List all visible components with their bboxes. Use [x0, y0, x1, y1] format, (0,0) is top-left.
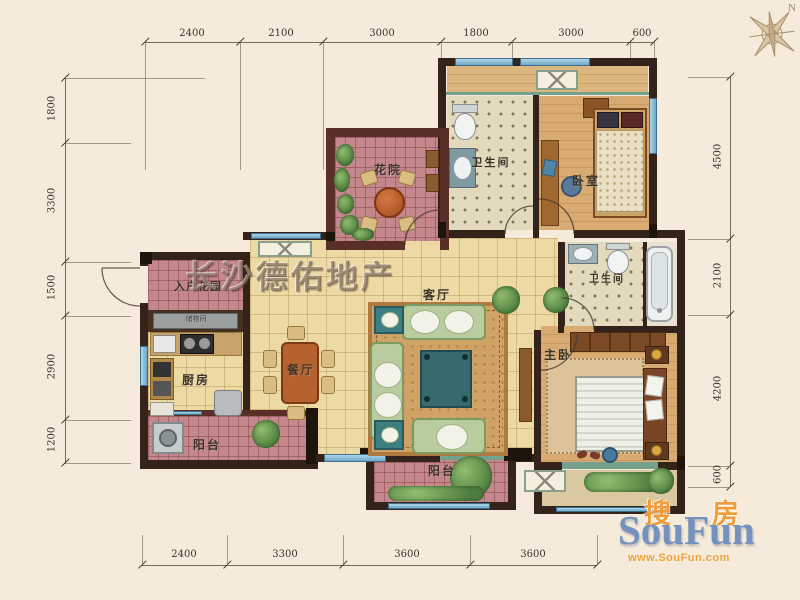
entry-door-arc: [102, 268, 140, 306]
tv-cabinet: [519, 348, 532, 422]
dim-top-4: 1800: [458, 28, 494, 39]
dim-top-1: 2400: [174, 28, 210, 39]
window-kitchen-left: [140, 346, 148, 386]
dim-bottom-3: 3600: [389, 549, 425, 560]
soufun-logo: 搜 房 SouFun www.SouFun.com: [618, 490, 788, 570]
dim-left-4: 2900: [47, 349, 58, 385]
room-label-storage: 储物间: [178, 314, 214, 324]
dim-line-left: [65, 78, 66, 463]
floorplan-page: { "watermark": "长沙德佑地产", "compass": { "n…: [0, 0, 800, 600]
ac-platform-top: [536, 70, 578, 90]
plant: [492, 286, 520, 314]
dim-right-3: 4200: [713, 371, 724, 407]
dim-left-3: 1500: [47, 270, 58, 306]
room-label-bath-top: 卫生间: [455, 154, 527, 170]
window-dining-top: [251, 233, 321, 239]
window-bath-top: [455, 58, 513, 66]
room-label-balcony-left: 阳台: [183, 436, 231, 453]
dim-top-5: 3000: [553, 28, 589, 39]
desk: [541, 140, 559, 226]
toilet-icon: [452, 104, 478, 113]
window-balcony-bottom: [388, 503, 490, 509]
master-bed: [575, 376, 645, 452]
dim-left-2: 3300: [47, 183, 58, 219]
svg-text:N: N: [788, 2, 796, 14]
compass-icon: N: [742, 0, 800, 62]
dim-bottom-4: 3600: [515, 549, 551, 560]
dim-line-right: [730, 77, 731, 487]
dim-right-1: 4500: [713, 139, 724, 175]
dim-bottom-2: 3300: [267, 549, 303, 560]
dim-top-2: 2100: [263, 28, 299, 39]
dim-top-3: 3000: [364, 28, 400, 39]
fridge: [214, 390, 242, 416]
room-label-flower-court: 花院: [364, 161, 412, 178]
dim-line-bottom: [142, 565, 597, 566]
stool: [602, 447, 618, 463]
logo-url: www.SouFun.com: [628, 552, 730, 564]
room-label-dining: 餐厅: [277, 361, 325, 378]
room-label-master-bedroom: 主卧: [534, 346, 582, 363]
dim-left-1: 1800: [47, 91, 58, 127]
dim-line-top: [145, 42, 654, 43]
window-bedroom-top: [520, 58, 590, 66]
dim-left-5: 1200: [47, 422, 58, 458]
kitchen-sink: [153, 335, 176, 353]
plant: [252, 420, 280, 448]
window-bedroom-right: [649, 98, 657, 154]
logo-name: SouFun: [618, 506, 755, 554]
court-table: [374, 187, 405, 218]
dim-right-4: 600: [713, 457, 724, 493]
dim-bottom-1: 2400: [166, 549, 202, 560]
room-label-living: 客厅: [413, 286, 461, 303]
room-label-balcony-bottom: 阳台: [418, 462, 466, 479]
toilet-icon: [606, 243, 630, 250]
court-shelf: [426, 150, 439, 168]
room-label-kitchen: 厨房: [172, 371, 220, 388]
plant: [543, 287, 569, 313]
watermark: 长沙德佑地产: [186, 252, 396, 298]
dim-top-6: 600: [624, 28, 660, 39]
window-master-balcony-door: [562, 462, 658, 469]
ac-platform-bottom: [524, 470, 566, 492]
room-label-bath-master: 卫生间: [571, 270, 643, 285]
room-label-bedroom: 卧室: [562, 172, 610, 189]
dim-right-2: 2100: [713, 258, 724, 294]
